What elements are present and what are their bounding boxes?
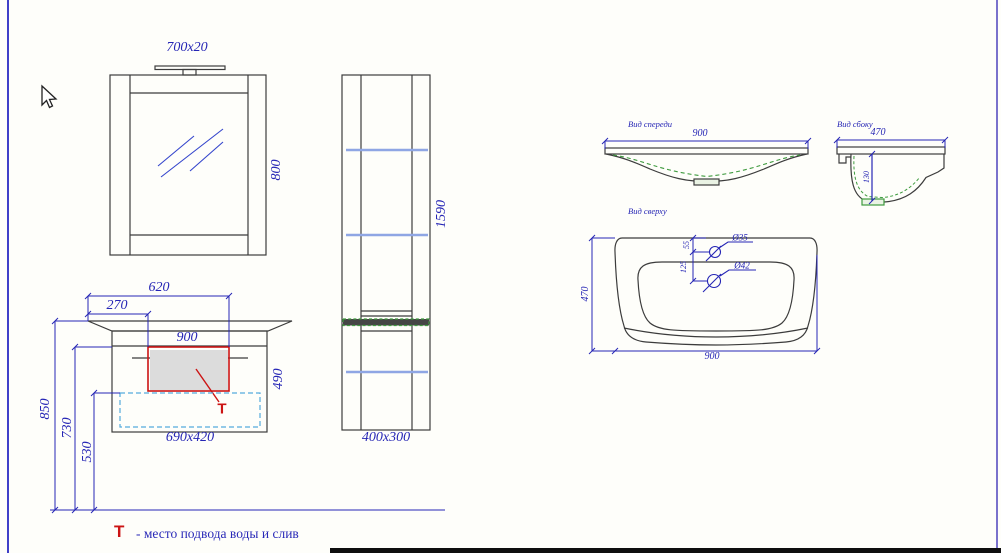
- vanity-panel-highlight: [148, 347, 229, 402]
- sink-top-drawing: [615, 238, 817, 345]
- vanity-dashed-zone: [120, 393, 260, 427]
- mirror-drawing: [110, 66, 266, 255]
- legend-text: - место подвода воды и слив: [136, 526, 299, 542]
- sink-top-hole-spacing-dim: 125: [680, 261, 688, 273]
- vanity-dim-270: 270: [107, 299, 128, 313]
- tall-cabinet-shelves: [346, 150, 428, 372]
- sink-top-hole-offset-dim: 55: [683, 241, 691, 249]
- cabinet-footprint-dim: 400x300: [362, 431, 410, 445]
- sink-side-depth-dim: 130: [863, 171, 871, 183]
- sink-front-dimension: [602, 138, 811, 149]
- mirror-height-dim: 800: [270, 160, 284, 181]
- vanity-dim-730: 730: [61, 418, 75, 439]
- sink-top-dimensions: [589, 235, 820, 354]
- vanity-dim-900: 900: [177, 331, 198, 345]
- sink-top-hole-large-label: Ø42: [734, 262, 750, 271]
- sink-top-view-label: Вид сверху: [628, 207, 667, 216]
- vanity-footprint-dim: 690x420: [166, 431, 214, 445]
- vanity-t-marker: T: [217, 402, 226, 417]
- sink-top-depth-dim: 470: [581, 287, 591, 302]
- mirror-glass-hatch: [158, 129, 223, 177]
- vanity-dim-490: 490: [272, 369, 286, 390]
- sink-side-width-dim: 470: [871, 128, 886, 138]
- sink-side-view-label: Вид сбоку: [837, 120, 873, 129]
- cursor-icon: [42, 86, 56, 108]
- tall-cabinet-counter-band: [343, 319, 429, 326]
- sink-front-drawing: [605, 148, 808, 185]
- cabinet-height-dim: 1590: [435, 200, 449, 228]
- sink-top-width-dim: 900: [705, 352, 720, 362]
- drawing-canvas: [0, 0, 1001, 553]
- vanity-dim-620: 620: [149, 281, 170, 295]
- vanity-dim-530: 530: [81, 442, 95, 463]
- sink-front-width-dim: 900: [693, 129, 708, 139]
- sink-top-hole-small-label: Ø35: [732, 234, 748, 243]
- legend-t-symbol: T: [114, 523, 124, 540]
- vanity-dim-850: 850: [39, 399, 53, 420]
- tall-cabinet-drawing: [342, 75, 430, 430]
- sink-front-view-label: Вид спереди: [628, 120, 672, 129]
- mirror-lamp-dim: 700x20: [166, 41, 207, 55]
